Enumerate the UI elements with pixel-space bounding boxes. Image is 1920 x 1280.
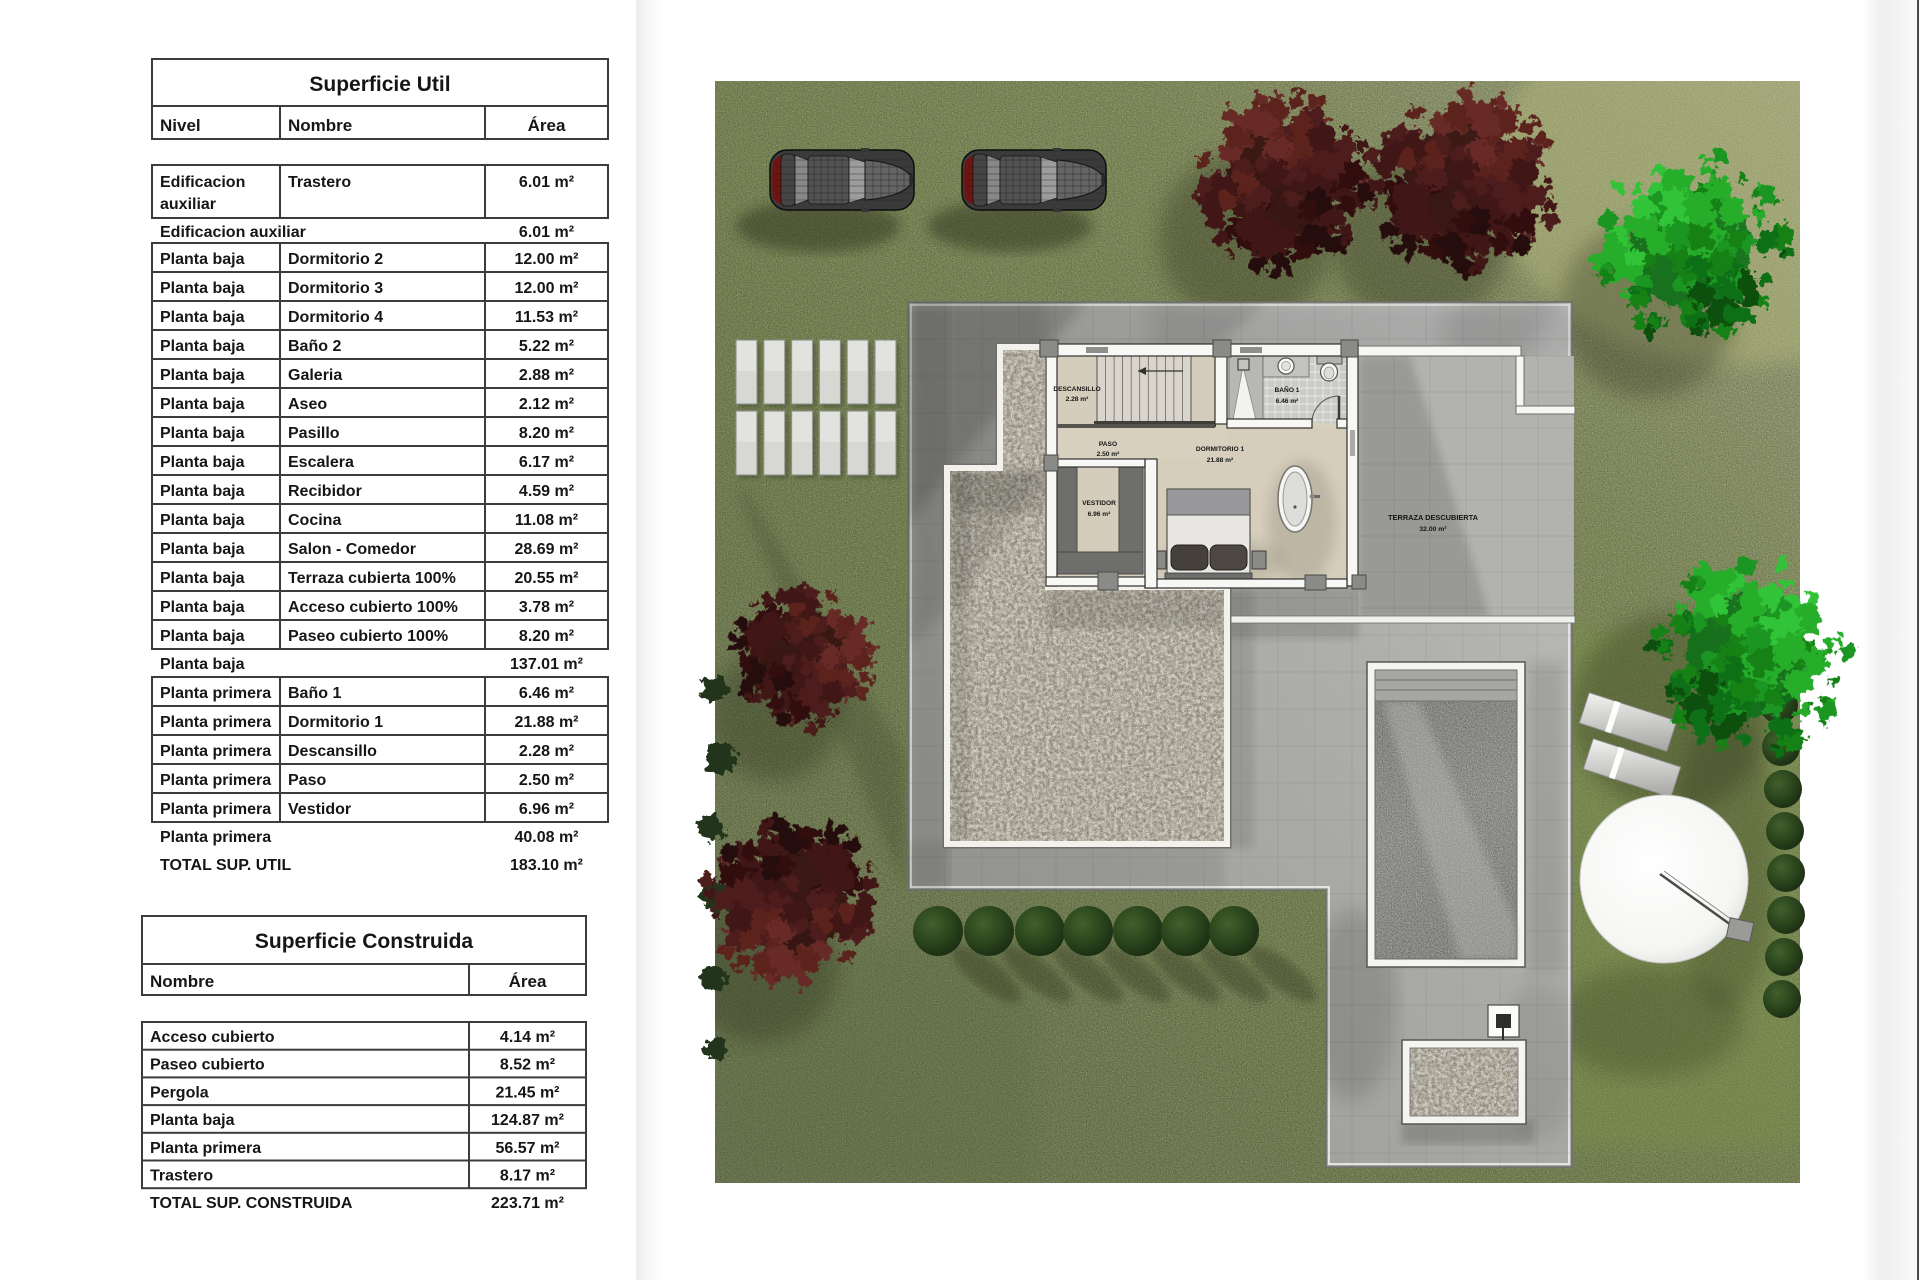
svg-text:Pergola: Pergola <box>150 1084 209 1101</box>
svg-text:Edificacion auxiliar: Edificacion auxiliar <box>160 224 306 241</box>
svg-text:Cocina: Cocina <box>288 512 341 529</box>
svg-text:Paseo cubierto: Paseo cubierto <box>150 1057 265 1074</box>
svg-text:21.88 m²: 21.88 m² <box>514 714 578 731</box>
svg-text:VESTIDOR: VESTIDOR <box>1082 500 1116 507</box>
svg-text:Dormitorio 2: Dormitorio 2 <box>288 251 383 268</box>
svg-text:Planta baja: Planta baja <box>160 367 245 384</box>
svg-text:Baño 1: Baño 1 <box>288 685 341 702</box>
svg-text:2.50 m²: 2.50 m² <box>519 772 574 789</box>
svg-text:12.00 m²: 12.00 m² <box>514 251 578 268</box>
svg-text:5.22 m²: 5.22 m² <box>519 338 574 355</box>
svg-text:Planta baja: Planta baja <box>160 425 245 442</box>
svg-text:DESCANSILLO: DESCANSILLO <box>1053 386 1100 393</box>
svg-text:Planta baja: Planta baja <box>160 396 245 413</box>
svg-text:auxiliar: auxiliar <box>160 196 216 213</box>
svg-text:Baño 2: Baño 2 <box>288 338 341 355</box>
svg-text:Planta baja: Planta baja <box>160 280 245 297</box>
svg-text:Planta baja: Planta baja <box>160 309 245 326</box>
svg-text:21.45 m²: 21.45 m² <box>495 1084 559 1101</box>
svg-text:Paso: Paso <box>288 772 326 789</box>
svg-text:Planta primera: Planta primera <box>160 772 271 789</box>
svg-text:Descansillo: Descansillo <box>288 743 377 760</box>
svg-text:Área: Área <box>528 116 566 135</box>
svg-text:Salon - Comedor: Salon - Comedor <box>288 541 416 558</box>
svg-text:PASO: PASO <box>1099 441 1117 448</box>
svg-text:20.55 m²: 20.55 m² <box>514 570 578 587</box>
svg-text:Planta baja: Planta baja <box>160 628 245 645</box>
svg-text:32.00 m²: 32.00 m² <box>1419 526 1447 533</box>
svg-text:Aseo: Aseo <box>288 396 327 413</box>
svg-text:28.69 m²: 28.69 m² <box>514 541 578 558</box>
svg-text:Planta baja: Planta baja <box>160 570 245 587</box>
svg-text:Planta primera: Planta primera <box>160 801 271 818</box>
svg-text:Planta baja: Planta baja <box>160 512 245 529</box>
svg-text:TERRAZA DESCUBIERTA: TERRAZA DESCUBIERTA <box>1388 513 1479 522</box>
svg-text:Superficie Util: Superficie Util <box>309 73 450 96</box>
svg-text:6.01 m²: 6.01 m² <box>519 174 574 191</box>
svg-text:2.50 m²: 2.50 m² <box>1097 451 1121 458</box>
svg-text:8.52 m²: 8.52 m² <box>500 1057 555 1074</box>
svg-text:40.08 m²: 40.08 m² <box>514 829 578 846</box>
svg-text:3.78 m²: 3.78 m² <box>519 599 574 616</box>
svg-text:Pasillo: Pasillo <box>288 425 340 442</box>
svg-text:8.17 m²: 8.17 m² <box>500 1168 555 1185</box>
svg-text:Recibidor: Recibidor <box>288 483 362 500</box>
svg-text:Planta baja: Planta baja <box>160 541 245 558</box>
svg-text:Planta baja: Planta baja <box>160 656 245 673</box>
svg-text:Dormitorio 4: Dormitorio 4 <box>288 309 383 326</box>
svg-text:Edificacion: Edificacion <box>160 174 245 191</box>
svg-text:TOTAL SUP. CONSTRUIDA: TOTAL SUP. CONSTRUIDA <box>150 1195 353 1212</box>
svg-text:8.20 m²: 8.20 m² <box>519 628 574 645</box>
svg-text:Dormitorio 3: Dormitorio 3 <box>288 280 383 297</box>
svg-text:6.46 m²: 6.46 m² <box>1276 398 1300 405</box>
svg-text:Terraza cubierta 100%: Terraza cubierta 100% <box>288 570 456 587</box>
svg-text:Acceso cubierto: Acceso cubierto <box>150 1029 275 1046</box>
svg-text:Vestidor: Vestidor <box>288 801 351 818</box>
svg-text:137.01 m²: 137.01 m² <box>510 656 583 673</box>
svg-text:56.57 m²: 56.57 m² <box>495 1140 559 1157</box>
svg-text:2.28 m²: 2.28 m² <box>1066 396 1090 403</box>
svg-text:Paseo cubierto 100%: Paseo cubierto 100% <box>288 628 448 645</box>
svg-text:Planta primera: Planta primera <box>150 1140 261 1157</box>
svg-text:Trastero: Trastero <box>288 174 351 191</box>
svg-text:Dormitorio 1: Dormitorio 1 <box>288 714 383 731</box>
svg-text:6.96 m²: 6.96 m² <box>1088 511 1112 518</box>
svg-text:183.10 m²: 183.10 m² <box>510 857 583 874</box>
svg-text:Nivel: Nivel <box>160 116 201 135</box>
svg-text:Planta baja: Planta baja <box>160 251 245 268</box>
svg-text:Planta baja: Planta baja <box>160 454 245 471</box>
svg-text:2.12 m²: 2.12 m² <box>519 396 574 413</box>
svg-text:Nombre: Nombre <box>150 972 214 991</box>
svg-text:Planta primera: Planta primera <box>160 685 271 702</box>
svg-text:6.96 m²: 6.96 m² <box>519 801 574 818</box>
svg-text:BAÑO 1: BAÑO 1 <box>1275 385 1300 394</box>
svg-text:11.53 m²: 11.53 m² <box>515 309 578 326</box>
svg-text:Planta primera: Planta primera <box>160 743 271 760</box>
svg-text:Acceso cubierto 100%: Acceso cubierto 100% <box>288 599 458 616</box>
svg-text:6.01 m²: 6.01 m² <box>519 224 574 241</box>
svg-text:4.14 m²: 4.14 m² <box>500 1029 555 1046</box>
svg-text:Planta baja: Planta baja <box>160 599 245 616</box>
svg-text:Trastero: Trastero <box>150 1168 213 1185</box>
svg-text:11.08 m²: 11.08 m² <box>515 512 578 529</box>
svg-text:Área: Área <box>509 972 547 991</box>
svg-text:21.88 m²: 21.88 m² <box>1207 457 1234 464</box>
svg-text:223.71 m²: 223.71 m² <box>491 1195 564 1212</box>
svg-text:2.28 m²: 2.28 m² <box>519 743 574 760</box>
svg-text:Planta baja: Planta baja <box>150 1112 235 1129</box>
svg-text:Planta primera: Planta primera <box>160 714 271 731</box>
svg-text:Planta baja: Planta baja <box>160 338 245 355</box>
svg-text:Superficie Construida: Superficie Construida <box>255 930 474 953</box>
svg-text:6.46 m²: 6.46 m² <box>519 685 574 702</box>
svg-text:TOTAL SUP. UTIL: TOTAL SUP. UTIL <box>160 857 292 874</box>
svg-text:Planta primera: Planta primera <box>160 829 271 846</box>
svg-text:2.88 m²: 2.88 m² <box>519 367 574 384</box>
svg-text:Nombre: Nombre <box>288 116 352 135</box>
svg-text:8.20 m²: 8.20 m² <box>519 425 574 442</box>
svg-text:Escalera: Escalera <box>288 454 354 471</box>
svg-text:6.17 m²: 6.17 m² <box>519 454 574 471</box>
svg-text:12.00 m²: 12.00 m² <box>514 280 578 297</box>
svg-text:DORMITORIO 1: DORMITORIO 1 <box>1196 446 1245 453</box>
svg-text:Galeria: Galeria <box>288 367 342 384</box>
svg-text:4.59 m²: 4.59 m² <box>519 483 574 500</box>
svg-text:124.87 m²: 124.87 m² <box>491 1112 564 1129</box>
svg-text:Planta baja: Planta baja <box>160 483 245 500</box>
